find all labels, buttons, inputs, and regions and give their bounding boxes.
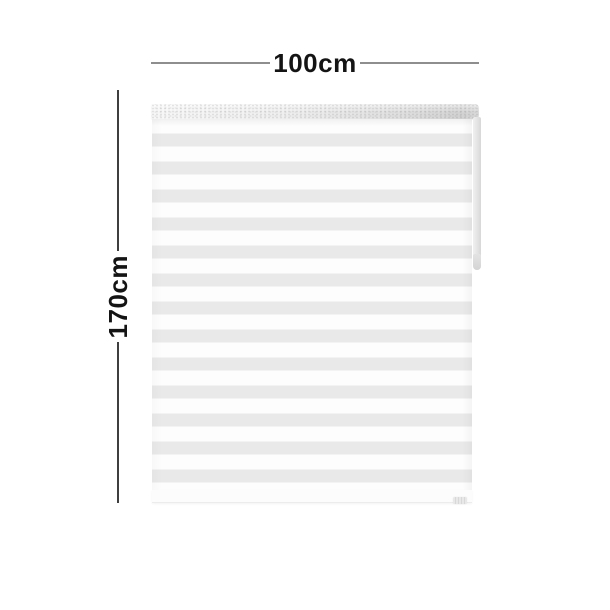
width-dimension-line-right	[360, 62, 479, 64]
blind-header-rail	[151, 104, 479, 119]
pull-chain-end	[473, 254, 481, 270]
product-dimension-image: 100cm 170cm	[0, 0, 610, 610]
width-dimension-line-left	[151, 62, 270, 64]
bottom-rail-tab	[453, 497, 467, 504]
width-dimension: 100cm	[151, 44, 479, 82]
blind-bottom-rail	[152, 490, 472, 503]
height-dimension-line-bottom	[117, 342, 119, 503]
pull-chain	[473, 117, 481, 270]
height-label: 170cm	[105, 251, 131, 342]
height-dimension: 170cm	[97, 90, 139, 503]
roller-blind	[152, 104, 474, 503]
blind-striped-fabric	[152, 119, 472, 490]
height-dimension-line-top	[117, 90, 119, 251]
width-label: 100cm	[270, 50, 359, 76]
